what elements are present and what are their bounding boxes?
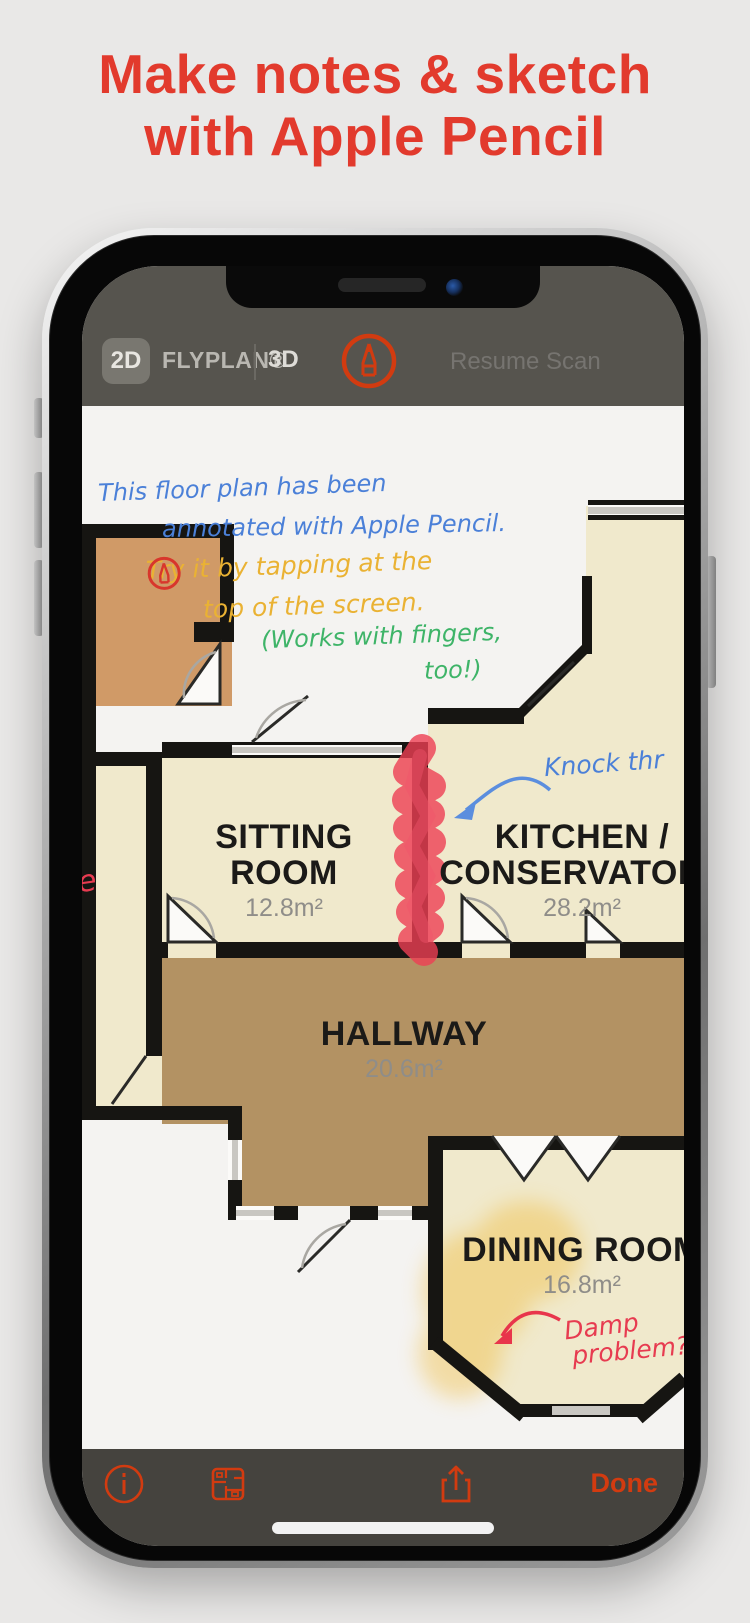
headline: Make notes & sketch with Apple Pencil [0, 44, 750, 167]
info-button[interactable] [102, 1462, 146, 1506]
resume-scan-button[interactable]: Resume Scan [450, 348, 601, 376]
front-camera [446, 279, 463, 296]
done-button[interactable]: Done [591, 1468, 659, 1499]
headline-line1: Make notes & sketch [0, 44, 750, 106]
pencil-icon [340, 332, 398, 390]
floorplan-canvas[interactable]: This floor plan has been annotated with … [82, 406, 684, 1449]
headline-line2: with Apple Pencil [0, 106, 750, 168]
tab-3d[interactable]: 3D [268, 346, 299, 374]
iphone-mockup: 2D FLYPLAN® 3D Resume Scan [42, 228, 708, 1568]
speaker-grille [338, 278, 426, 292]
tab-2d[interactable]: 2D [102, 338, 150, 384]
room-label-hallway: HALLWAY 20.6m² [321, 1016, 488, 1084]
pencil-annotate-button[interactable] [340, 332, 398, 390]
info-icon [102, 1462, 146, 1506]
circled-pencil-glyph [146, 555, 183, 592]
room-label-kitchen: KITCHEN / CONSERVATORY 28.2m² [439, 819, 684, 923]
room-label-sitting: SITTING ROOM 12.8m² [215, 819, 353, 923]
floorplan-thumbnail-icon [206, 1462, 250, 1506]
share-icon [434, 1462, 478, 1506]
handwriting-blue-2: annotated with Apple Pencil. [162, 509, 507, 543]
app-screen: 2D FLYPLAN® 3D Resume Scan [82, 266, 684, 1546]
phone-bezel: 2D FLYPLAN® 3D Resume Scan [49, 235, 701, 1561]
plans-button[interactable] [206, 1462, 250, 1506]
handwriting-green-2: too!) [424, 655, 483, 685]
red-scribble-annotation [406, 748, 432, 952]
home-indicator[interactable] [272, 1522, 494, 1534]
notch [226, 266, 540, 308]
topbar-divider [254, 344, 256, 380]
room-label-dining: DINING ROOM 16.8m² [462, 1232, 684, 1300]
share-button[interactable] [434, 1462, 478, 1506]
